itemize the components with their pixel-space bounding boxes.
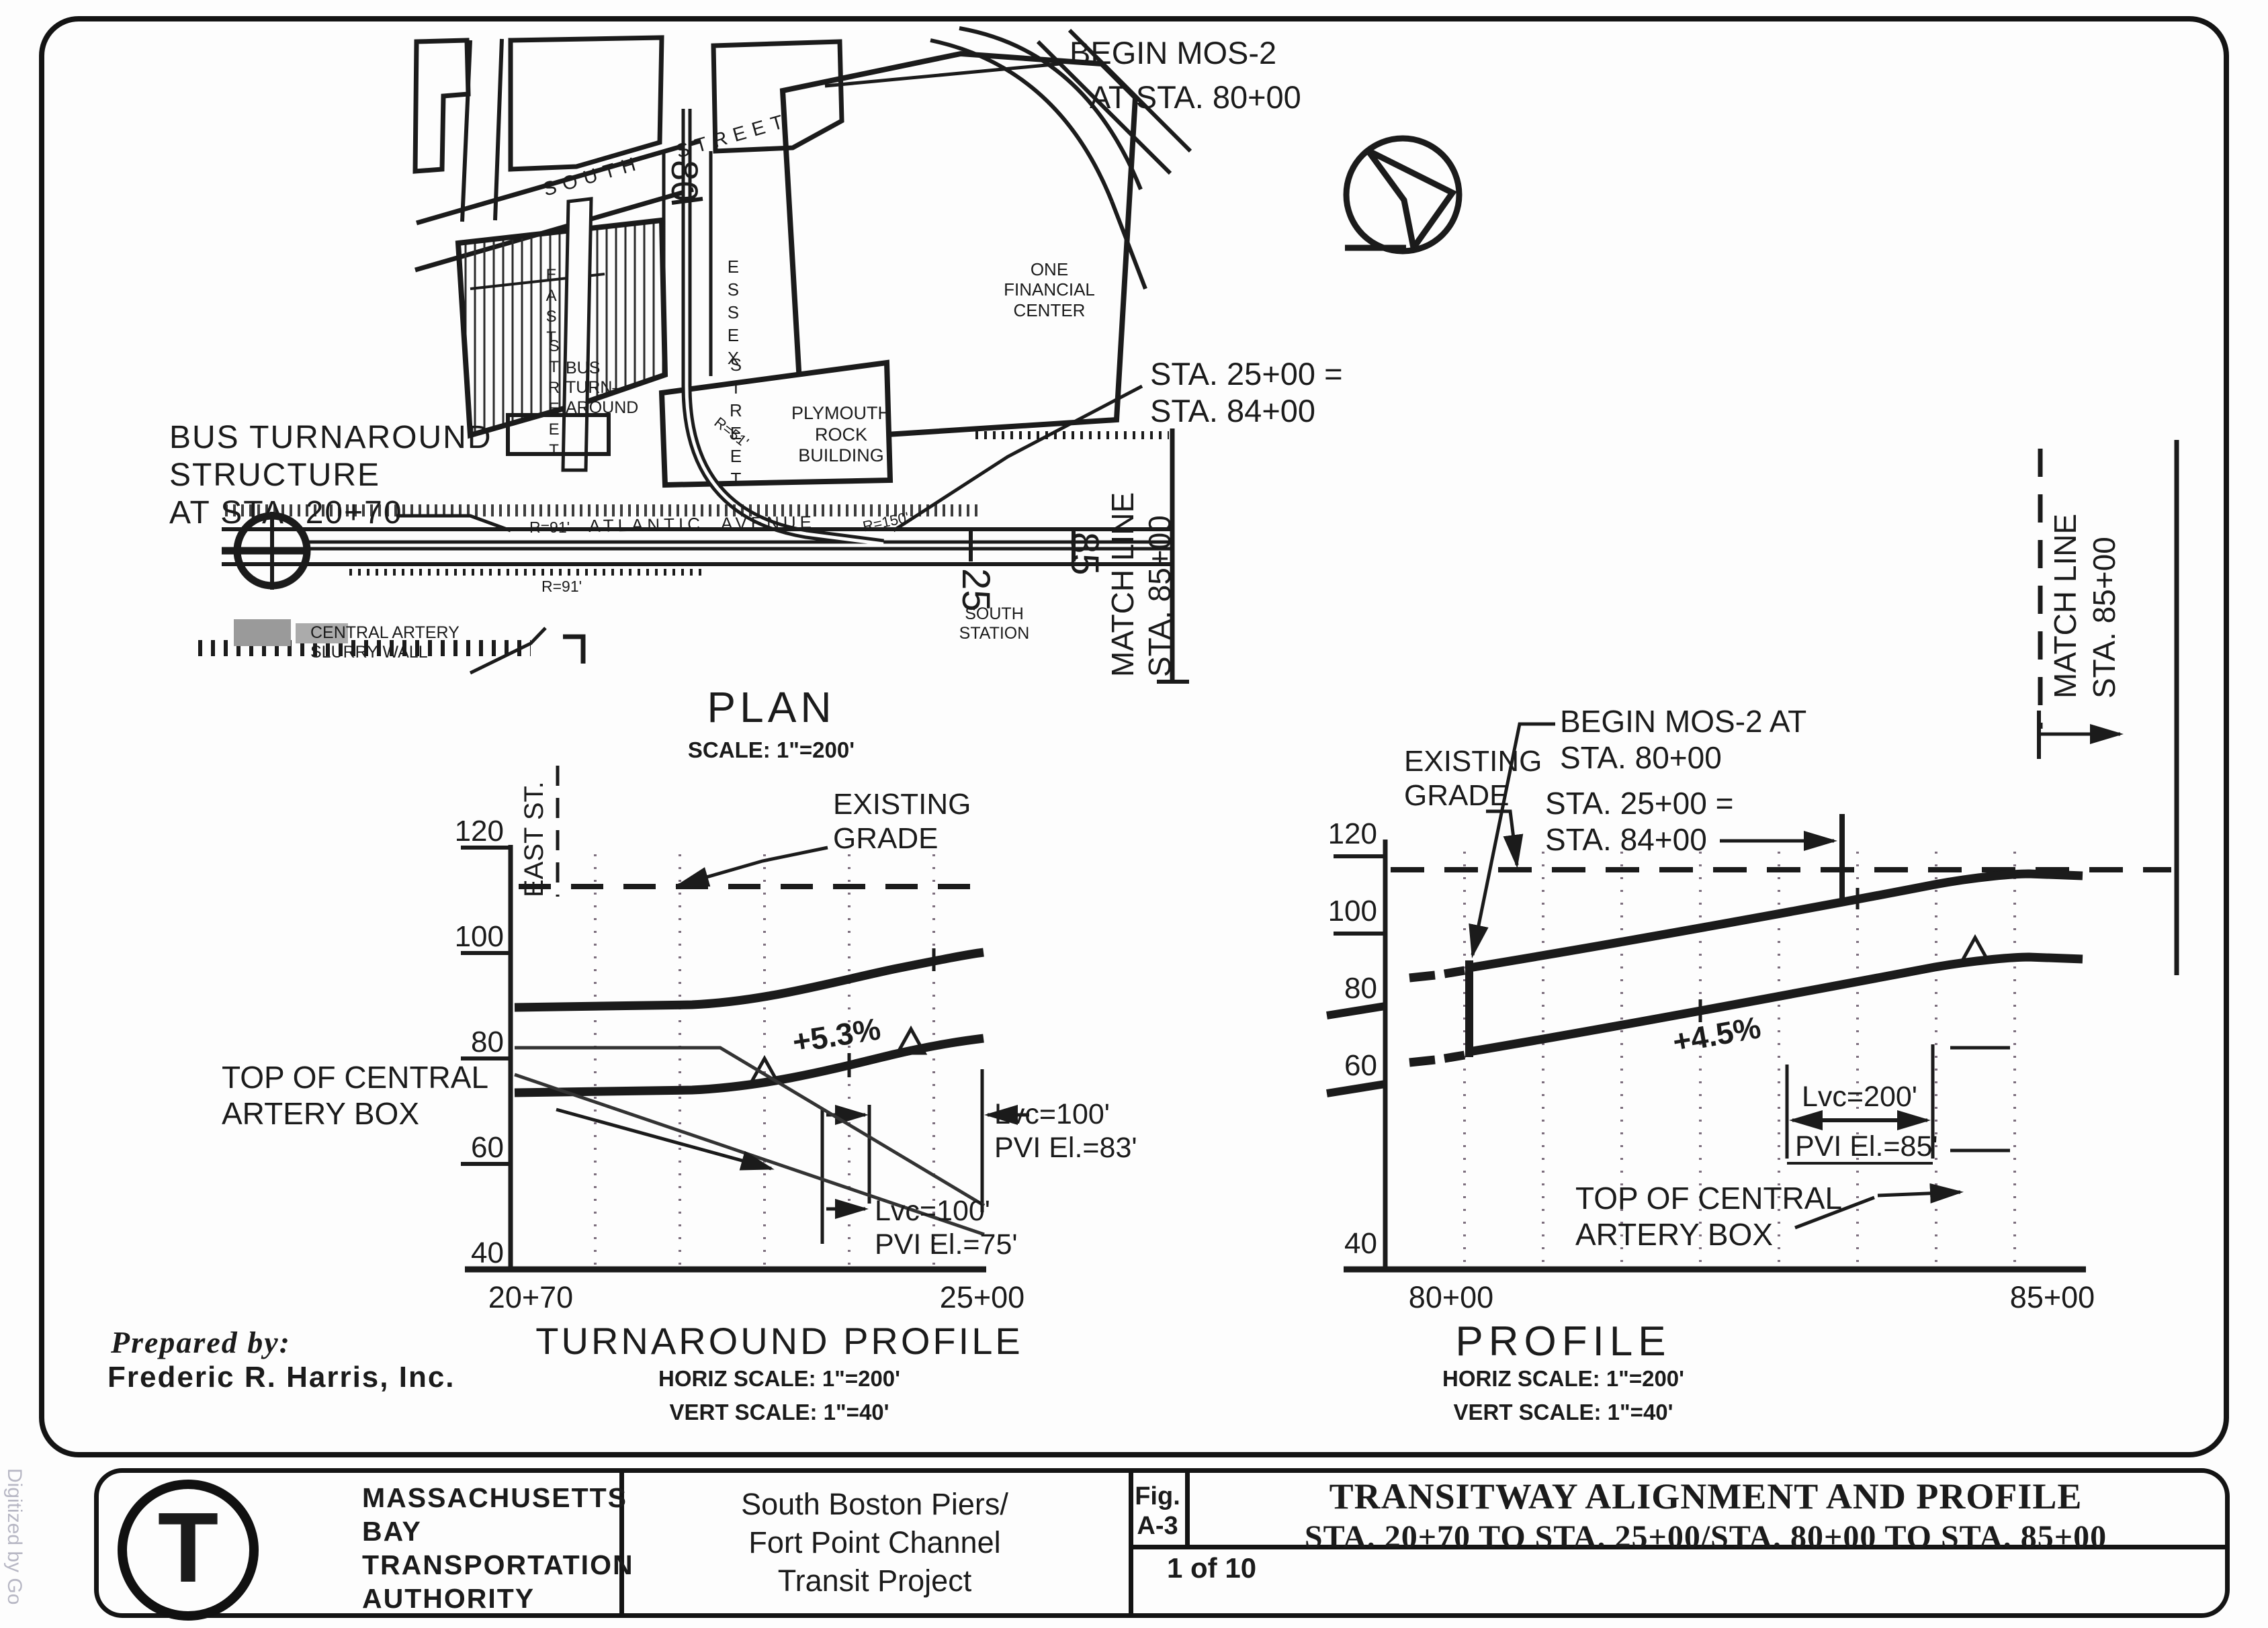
sheet-number: 1 of 10 (1167, 1552, 1256, 1584)
left-el-60: 60 (471, 1130, 504, 1165)
sta-2500-eq-note: STA. 25+00 = STA. 84+00 (1150, 356, 1343, 430)
match-line-right-label-1: MATCH LINE (2048, 514, 2084, 698)
right-el-40: 40 (1344, 1226, 1377, 1261)
sheet-frame (42, 19, 2226, 1455)
existing-grade-right-label: EXISTING GRADE (1404, 744, 1542, 813)
central-artery-slurry-label: CENTRAL ARTERY SLURRY WALL (310, 623, 460, 663)
bus-structure-note: BUS TURNAROUND STRUCTURE AT STA. 20+70 (169, 419, 492, 532)
begin-mos2-note-line2: AT STA. 80+00 (1090, 79, 1301, 116)
scan-watermark: Digitized by Go (3, 1468, 26, 1628)
turnaround-horiz-scale: HORIZ SCALE: 1"=200' (658, 1366, 900, 1392)
left-el-40: 40 (471, 1236, 504, 1270)
turnaround-profile-title: TURNAROUND PROFILE (535, 1319, 1022, 1363)
prepared-firm-label: Frederic R. Harris, Inc. (107, 1361, 455, 1394)
drawing-title-line2: STA. 20+70 TO STA. 25+00/STA. 80+00 TO S… (1186, 1519, 2225, 1555)
begin-mos2-right-label: BEGIN MOS-2 AT STA. 80+00 (1560, 704, 1806, 776)
left-el-120: 120 (455, 814, 504, 848)
left-el-80: 80 (471, 1025, 504, 1059)
profile-horiz-scale: HORIZ SCALE: 1"=200' (1442, 1366, 1684, 1392)
turnaround-vert-scale: VERT SCALE: 1"=40' (669, 1400, 889, 1426)
right-el-120: 120 (1328, 817, 1377, 851)
left-el-100: 100 (455, 919, 504, 954)
figure-number-cell: Fig. A-3 (1130, 1473, 1185, 1541)
bus-turnaround-small-label: BUS TURN— AROUND (566, 359, 638, 418)
sta-8000-tick-label: 80+00 (1409, 1280, 1493, 1316)
figure-label: Fig. (1130, 1482, 1185, 1512)
atlantic-avenue-label: ATLANTIC AVENUE (588, 512, 816, 536)
east-st-profile-label: EAST ST. (519, 781, 550, 897)
lvc-83-label: Lvc=100' PVI El.=83' (994, 1097, 1137, 1165)
match-line-plan-label-2: STA. 85+00 (1142, 515, 1178, 677)
project-name-line3: Transit Project (778, 1562, 971, 1600)
right-el-80: 80 (1344, 971, 1377, 1005)
one-financial-center-label: ONE FINANCIAL CENTER (1004, 259, 1095, 320)
figure-number: A-3 (1130, 1512, 1185, 1541)
sta-eq-right-label: STA. 25+00 = STA. 84+00 (1545, 786, 1733, 858)
plan-view (198, 28, 1459, 682)
mbta-logo: T (118, 1480, 259, 1621)
profile-vert-scale: VERT SCALE: 1"=40' (1453, 1400, 1673, 1426)
right-el-100: 100 (1328, 894, 1377, 928)
left-existing-grade-leader (679, 848, 828, 885)
prepared-by-label: Prepared by: (111, 1324, 291, 1360)
lvc-75-label: Lvc=100' PVI El.=75' (875, 1194, 1018, 1262)
left-artery-box-leader (556, 1110, 771, 1169)
match-line-right-label-2: STA. 85+00 (2087, 537, 2123, 698)
existing-grade-left-label: EXISTING GRADE (833, 787, 971, 856)
essex-street-label-1: ESSEX (723, 257, 743, 371)
mbta-logo-letter: T (158, 1498, 218, 1598)
r91-label-2: R=91' (541, 578, 582, 596)
sta-8500-tick-label: 85+00 (2010, 1280, 2095, 1316)
top-central-artery-right-label: TOP OF CENTRAL ARTERY BOX (1575, 1181, 1842, 1253)
plan-scale-label: SCALE: 1"=200' (688, 737, 855, 764)
east-street-strip (563, 199, 591, 470)
right-el-60: 60 (1344, 1048, 1377, 1083)
begin-mos2-note-line1: BEGIN MOS-2 (1070, 35, 1276, 72)
authority-name: MASSACHUSETTS BAY TRANSPORTATION AUTHORI… (362, 1481, 634, 1615)
left-top-profile-line (515, 952, 984, 1007)
r91-label-1: R=91' (529, 518, 570, 537)
profile-title: PROFILE (1455, 1318, 1671, 1367)
top-central-artery-left-label: TOP OF CENTRAL ARTERY BOX (222, 1060, 488, 1132)
drawing-sheet: BEGIN MOS-2AT STA. 80+00SOUTH STREET80ES… (0, 0, 2268, 1628)
project-name-line1: South Boston Piers/ (741, 1486, 1008, 1524)
drawing-title-cell: TRANSITWAY ALIGNMENT AND PROFILE STA. 20… (1186, 1473, 2225, 1555)
lvc-200-label: Lvc=200' (1802, 1080, 1917, 1114)
title-block: T MASSACHUSETTS BAY TRANSPORTATION AUTHO… (94, 1468, 2230, 1618)
station-85-plan: 85 (1061, 532, 1107, 576)
sta-2500-tick-label: 25+00 (940, 1280, 1024, 1316)
south-station-label: SOUTH STATION (959, 604, 1030, 644)
plymouth-rock-label: PLYMOUTH ROCK BUILDING (791, 403, 891, 467)
east-street-label-2: STREET (544, 337, 563, 462)
project-name: South Boston Piers/ Fort Point Channel T… (621, 1473, 1129, 1613)
north-arrow-icon (1345, 138, 1459, 251)
plan-title: PLAN (707, 682, 835, 733)
project-name-line2: Fort Point Channel (748, 1524, 1000, 1562)
match-line-plan-label-1: MATCH LINE (1105, 492, 1141, 677)
pvi-85-label: PVI El.=85' (1795, 1130, 1938, 1163)
drawing-title-line1: TRANSITWAY ALIGNMENT AND PROFILE (1186, 1476, 2225, 1517)
station-80-marker: 80 (662, 160, 707, 201)
sta-2070-tick-label: 20+70 (488, 1280, 573, 1316)
